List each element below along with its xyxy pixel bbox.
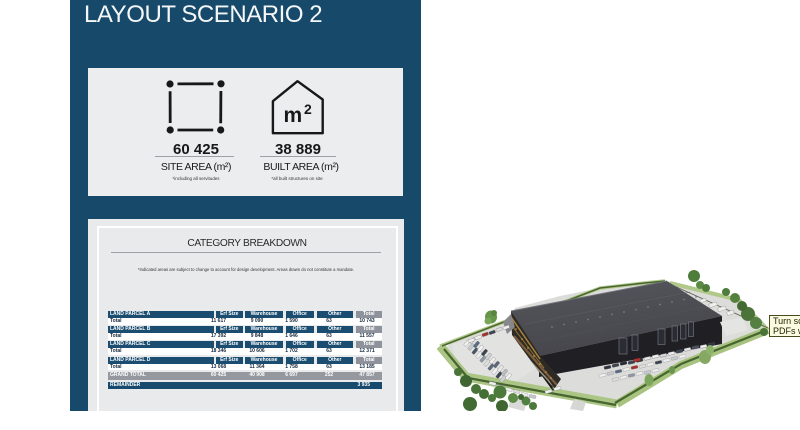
svg-text:2: 2 xyxy=(304,101,312,117)
svg-text:m: m xyxy=(284,104,303,127)
